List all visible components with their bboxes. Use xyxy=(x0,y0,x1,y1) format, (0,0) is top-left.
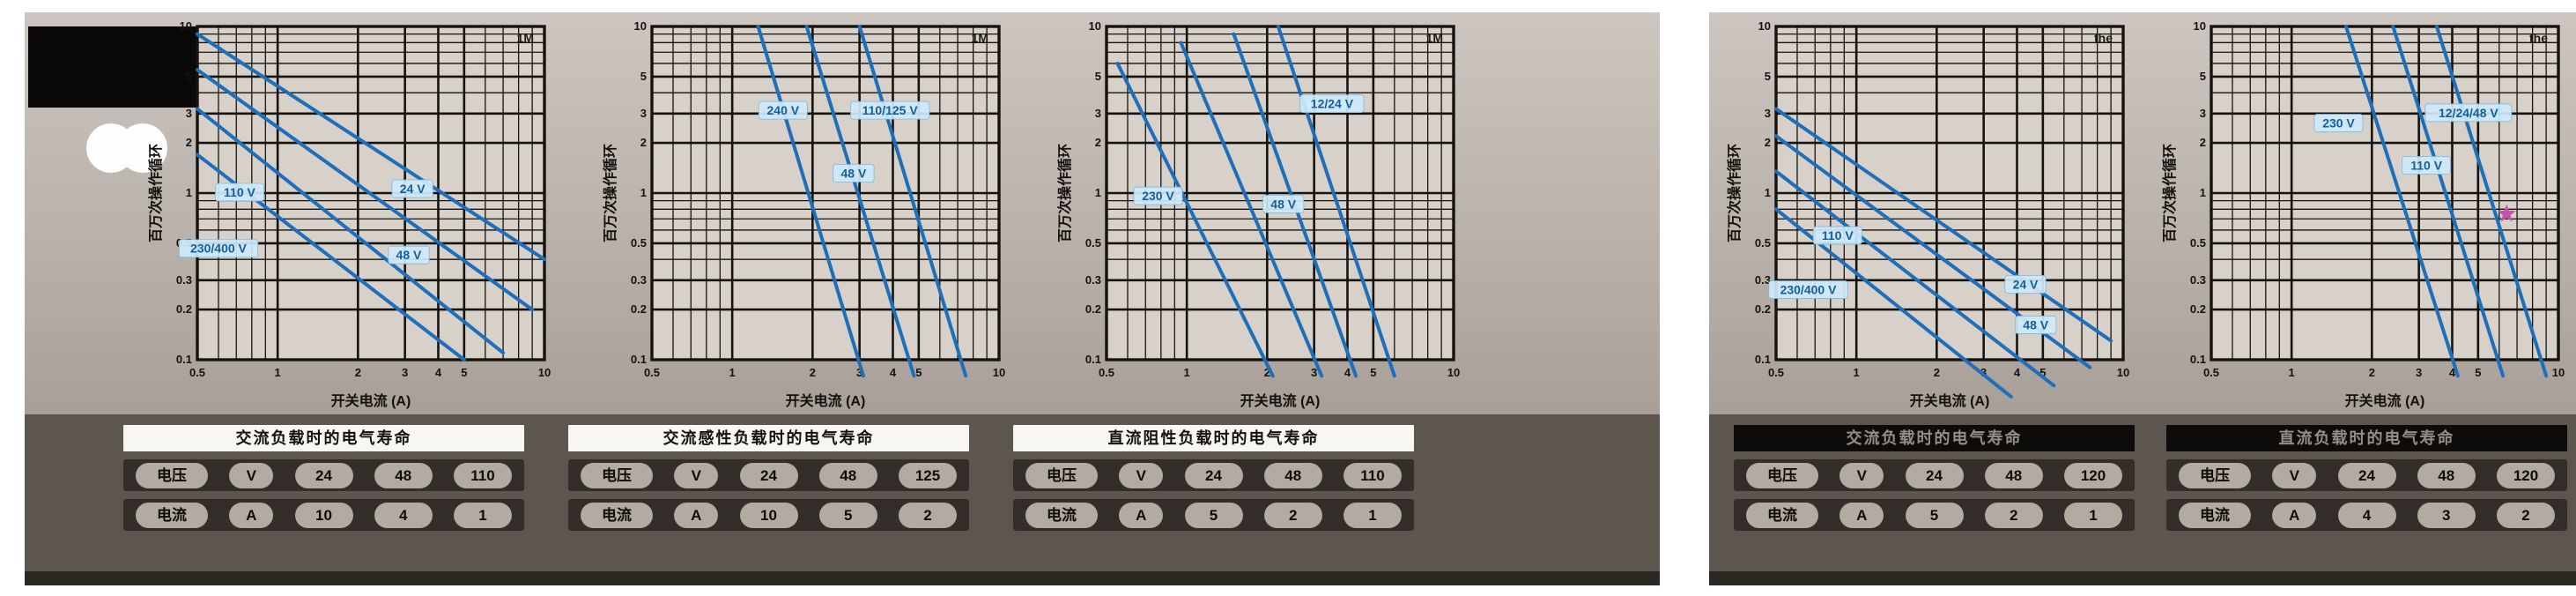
curve-label-24V: 24 V xyxy=(2005,275,2046,293)
y-tick-label: 0.5 xyxy=(1755,236,1771,250)
value-cell: 10 xyxy=(740,503,798,528)
value-cell: 48 xyxy=(1985,463,2043,488)
curve-label-122448V: 12/24/48 V xyxy=(2425,104,2512,122)
value-cell: 2 xyxy=(899,503,957,528)
curve-label-110V: 110 V xyxy=(215,183,263,201)
unit-label: A xyxy=(1839,503,1884,528)
chart-2-svg: 0.512345100.10.20.30.5123510百万次操作循环开关电流 … xyxy=(601,16,1006,414)
unit-label: A xyxy=(1119,503,1163,528)
svg-text:48 V: 48 V xyxy=(396,248,422,262)
x-tick-label: 5 xyxy=(915,366,922,379)
curve-label-230400V: 230/400 V xyxy=(1769,281,1847,299)
y-tick-label: 0.1 xyxy=(1755,353,1771,366)
value-cell: 24 xyxy=(295,463,353,488)
x-tick-label: 1 xyxy=(2289,366,2295,379)
y-tick-label: 3 xyxy=(1095,107,1101,120)
value-cell: 1 xyxy=(2064,503,2122,528)
value-cell: 120 xyxy=(2064,463,2122,488)
corner-note: the xyxy=(2529,31,2548,45)
x-axis-label: 开关电流 (A) xyxy=(331,392,411,409)
y-tick-label: 2 xyxy=(1095,136,1101,149)
value-cell: 2 xyxy=(2497,503,2555,528)
x-tick-label: 0.5 xyxy=(644,366,660,379)
unit-label: V xyxy=(229,463,273,488)
x-tick-label: 4 xyxy=(435,366,442,379)
svg-text:48 V: 48 V xyxy=(1270,197,1296,211)
corner-note: 1M xyxy=(517,31,534,45)
value-cell: 24 xyxy=(1185,463,1243,488)
y-tick-label: 10 xyxy=(180,19,192,33)
x-tick-label: 1 xyxy=(1854,366,1860,379)
y-axis-label: 百万次操作循环 xyxy=(147,144,164,242)
table-header: 交流负载时的电气寿命 xyxy=(1734,425,2135,451)
chart-1: 0.512345100.10.20.30.5123510百万次操作循环开关电流 … xyxy=(146,16,551,414)
svg-text:48 V: 48 V xyxy=(841,166,867,180)
svg-text:12/24/48 V: 12/24/48 V xyxy=(2439,106,2498,120)
value-cell: 5 xyxy=(1185,503,1243,528)
table-right-2: 直流负载时的电气寿命电压V2448120电流A432 xyxy=(2166,425,2567,531)
curve-label-110125V: 110/125 V xyxy=(850,101,929,119)
x-tick-label: 2 xyxy=(810,366,816,379)
y-tick-label: 0.2 xyxy=(176,302,192,316)
datasheet-page: 0.512345100.10.20.30.5123510百万次操作循环开关电流 … xyxy=(0,0,2576,596)
y-tick-label: 1 xyxy=(186,186,192,199)
chart-3: 0.512345100.10.20.30.5123510百万次操作循环开关电流 … xyxy=(1055,16,1461,414)
curve-label-24V: 24 V xyxy=(392,180,433,197)
y-axis-label: 百万次操作循环 xyxy=(602,144,618,242)
table-row-voltage: 电压V2448120 xyxy=(1734,459,2135,491)
x-tick-label: 0.5 xyxy=(2203,366,2219,379)
table-header: 直流负载时的电气寿命 xyxy=(2166,425,2567,451)
x-tick-label: 4 xyxy=(1344,366,1351,379)
y-tick-label: 0.2 xyxy=(2190,302,2206,316)
x-tick-label: 10 xyxy=(2552,366,2565,379)
table-row-voltage: 电压V2448110 xyxy=(1013,459,1414,491)
y-tick-label: 3 xyxy=(186,107,192,120)
value-cell: 3 xyxy=(2417,503,2476,528)
x-tick-label: 5 xyxy=(461,366,467,379)
svg-text:110 V: 110 V xyxy=(224,185,255,199)
value-cell: 48 xyxy=(2417,463,2476,488)
unit-label: V xyxy=(674,463,718,488)
table-left-1: 交流负载时的电气寿命电压V2448110电流A1041 xyxy=(123,425,524,531)
svg-text:240 V: 240 V xyxy=(767,103,800,117)
right-panel: 0.512345100.10.20.30.5123510百万次操作循环开关电流 … xyxy=(1709,12,2576,585)
value-cell: 110 xyxy=(454,463,512,488)
svg-text:12/24 V: 12/24 V xyxy=(1311,97,1354,111)
chart-3-svg: 0.512345100.10.20.30.5123510百万次操作循环开关电流 … xyxy=(1055,16,1461,414)
chart-4-svg: 0.512345100.10.20.30.5123510百万次操作循环开关电流 … xyxy=(1725,16,2130,414)
row-label: 电流 xyxy=(2179,503,2251,528)
x-tick-label: 3 xyxy=(2416,366,2422,379)
y-tick-label: 2 xyxy=(2200,136,2206,149)
y-tick-label: 0.5 xyxy=(2190,236,2206,250)
unit-label: A xyxy=(674,503,718,528)
y-axis-label: 百万次操作循环 xyxy=(1056,144,1073,242)
svg-text:24 V: 24 V xyxy=(400,182,426,196)
y-tick-label: 10 xyxy=(2194,19,2206,33)
unit-label: V xyxy=(1839,463,1884,488)
y-tick-label: 1 xyxy=(2200,186,2206,199)
value-cell: 48 xyxy=(374,463,433,488)
table-row-current: 电流A521 xyxy=(1734,499,2135,531)
y-tick-label: 10 xyxy=(634,19,647,33)
table-row-current: 电流A1052 xyxy=(568,499,969,531)
y-tick-label: 0.1 xyxy=(2190,353,2206,366)
svg-text:230 V: 230 V xyxy=(1142,189,1174,203)
value-cell: 24 xyxy=(2338,463,2396,488)
table-row-current: 电流A1041 xyxy=(123,499,524,531)
x-tick-label: 0.5 xyxy=(1099,366,1114,379)
curve-label-230V: 230 V xyxy=(2314,115,2363,132)
y-tick-label: 2 xyxy=(1765,136,1771,149)
curve-label-48V: 48 V xyxy=(833,164,874,182)
curve-label-230400V: 230/400 V xyxy=(179,240,257,257)
curve-label-48V: 48 V xyxy=(389,246,429,264)
table-row-voltage: 电压V2448110 xyxy=(123,459,524,491)
y-axis-label: 百万次操作循环 xyxy=(2161,144,2178,242)
table-right-1: 交流负载时的电气寿命电压V2448120电流A521 xyxy=(1734,425,2135,531)
svg-text:230 V: 230 V xyxy=(2322,116,2355,130)
x-tick-label: 4 xyxy=(890,366,897,379)
value-cell: 110 xyxy=(1344,463,1402,488)
value-cell: 48 xyxy=(819,463,877,488)
unit-label: V xyxy=(2272,463,2316,488)
y-tick-label: 0.1 xyxy=(176,353,192,366)
left-charts-row: 0.512345100.10.20.30.5123510百万次操作循环开关电流 … xyxy=(25,16,1660,414)
right-tables-row: 交流负载时的电气寿命电压V2448120电流A521直流负载时的电气寿命电压V2… xyxy=(1709,414,2576,585)
curve-label-110V: 110 V xyxy=(2402,157,2451,175)
value-cell: 4 xyxy=(374,503,433,528)
y-axis-label: 百万次操作循环 xyxy=(1726,144,1743,242)
curve-label-230V: 230 V xyxy=(1134,187,1182,205)
y-tick-label: 5 xyxy=(2200,70,2206,83)
x-axis-label: 开关电流 (A) xyxy=(1910,392,1990,409)
row-label: 电压 xyxy=(1025,463,1098,488)
table-header: 交流感性负载时的电气寿命 xyxy=(568,425,969,451)
svg-text:230/400 V: 230/400 V xyxy=(190,242,247,256)
x-tick-label: 0.5 xyxy=(189,366,205,379)
table-row-current: 电流A521 xyxy=(1013,499,1414,531)
table-row-voltage: 电压V2448125 xyxy=(568,459,969,491)
table-row-current: 电流A432 xyxy=(2166,499,2567,531)
y-tick-label: 5 xyxy=(1765,70,1771,83)
curve-label-48V: 48 V xyxy=(1263,195,1304,212)
y-tick-label: 0.2 xyxy=(631,302,647,316)
y-tick-label: 0.5 xyxy=(631,236,647,250)
x-tick-label: 0.5 xyxy=(1768,366,1784,379)
svg-text:24 V: 24 V xyxy=(2013,277,2039,291)
y-tick-label: 0.2 xyxy=(1085,302,1101,316)
y-tick-label: 0.3 xyxy=(1755,273,1771,287)
row-label: 电流 xyxy=(581,503,653,528)
svg-text:110 V: 110 V xyxy=(2410,159,2442,173)
chart-2: 0.512345100.10.20.30.5123510百万次操作循环开关电流 … xyxy=(601,16,1006,414)
chart-4: 0.512345100.10.20.30.5123510百万次操作循环开关电流 … xyxy=(1725,16,2130,414)
y-tick-label: 3 xyxy=(1765,107,1771,120)
y-tick-label: 1 xyxy=(1095,186,1101,199)
y-tick-label: 2 xyxy=(186,136,192,149)
value-cell: 24 xyxy=(740,463,798,488)
y-tick-label: 0.1 xyxy=(631,353,647,366)
y-tick-label: 1 xyxy=(1765,186,1771,199)
table-row-voltage: 电压V2448120 xyxy=(2166,459,2567,491)
y-tick-label: 0.3 xyxy=(2190,273,2206,287)
unit-label: A xyxy=(2272,503,2316,528)
chart-5-svg: 0.512345100.10.20.30.5123510百万次操作循环开关电流 … xyxy=(2160,16,2565,414)
value-cell: 5 xyxy=(819,503,877,528)
value-cell: 5 xyxy=(1906,503,1964,528)
chart-1-svg: 0.512345100.10.20.30.5123510百万次操作循环开关电流 … xyxy=(146,16,551,414)
value-cell: 1 xyxy=(454,503,512,528)
x-tick-label: 1 xyxy=(1184,366,1190,379)
x-tick-label: 10 xyxy=(993,366,1005,379)
value-cell: 48 xyxy=(1264,463,1322,488)
y-tick-label: 5 xyxy=(1095,70,1101,83)
table-header: 直流阻性负载时的电气寿命 xyxy=(1013,425,1414,451)
row-label: 电压 xyxy=(136,463,208,488)
y-tick-label: 0.5 xyxy=(1085,236,1101,250)
x-tick-label: 2 xyxy=(355,366,361,379)
table-header: 交流负载时的电气寿命 xyxy=(123,425,524,451)
row-label: 电压 xyxy=(2179,463,2251,488)
x-tick-label: 4 xyxy=(2014,366,2021,379)
y-tick-label: 5 xyxy=(640,70,647,83)
x-tick-label: 1 xyxy=(729,366,736,379)
row-label: 电压 xyxy=(1746,463,1818,488)
value-cell: 4 xyxy=(2338,503,2396,528)
curve-label-110V: 110 V xyxy=(1813,227,1862,244)
curve-label-240V: 240 V xyxy=(759,101,807,119)
x-tick-label: 10 xyxy=(2117,366,2129,379)
x-tick-label: 5 xyxy=(1370,366,1376,379)
svg-text:230/400 V: 230/400 V xyxy=(1780,283,1837,297)
x-tick-label: 5 xyxy=(2475,366,2481,379)
y-tick-label: 0.2 xyxy=(1755,302,1771,316)
x-tick-label: 3 xyxy=(402,366,408,379)
x-tick-label: 10 xyxy=(538,366,551,379)
corner-note: 1M xyxy=(1426,31,1443,45)
svg-text:48 V: 48 V xyxy=(2023,317,2048,332)
y-tick-label: 3 xyxy=(640,107,647,120)
left-tables-row: 交流负载时的电气寿命电压V2448110电流A1041交流感性负载时的电气寿命电… xyxy=(25,414,1660,585)
value-cell: 2 xyxy=(1264,503,1322,528)
value-cell: 120 xyxy=(2497,463,2555,488)
y-tick-label: 10 xyxy=(1089,19,1101,33)
row-label: 电流 xyxy=(136,503,208,528)
y-tick-label: 2 xyxy=(640,136,647,149)
svg-text:110/125 V: 110/125 V xyxy=(862,103,919,117)
value-cell: 2 xyxy=(1985,503,2043,528)
y-tick-label: 0.3 xyxy=(631,273,647,287)
corner-note: 1M xyxy=(972,31,988,45)
curve-label-48V: 48 V xyxy=(2015,316,2055,333)
value-cell: 1 xyxy=(1344,503,1402,528)
grid xyxy=(1776,26,2123,360)
x-tick-label: 2 xyxy=(1934,366,1940,379)
corner-note: the xyxy=(2094,31,2113,45)
table-left-2: 交流感性负载时的电气寿命电压V2448125电流A1052 xyxy=(568,425,969,531)
left-panel: 0.512345100.10.20.30.5123510百万次操作循环开关电流 … xyxy=(25,12,1660,585)
y-tick-label: 5 xyxy=(186,70,192,83)
unit-label: A xyxy=(229,503,273,528)
x-axis-label: 开关电流 (A) xyxy=(786,392,866,409)
x-tick-label: 2 xyxy=(2369,366,2375,379)
value-cell: 24 xyxy=(1906,463,1964,488)
right-charts-row: 0.512345100.10.20.30.5123510百万次操作循环开关电流 … xyxy=(1709,16,2576,414)
row-label: 电压 xyxy=(581,463,653,488)
value-cell: 125 xyxy=(899,463,957,488)
curve-label-1224V: 12/24 V xyxy=(1300,95,1364,113)
row-label: 电流 xyxy=(1025,503,1098,528)
x-tick-label: 10 xyxy=(1447,366,1460,379)
y-tick-label: 1 xyxy=(640,186,647,199)
y-tick-label: 3 xyxy=(2200,107,2206,120)
row-label: 电流 xyxy=(1746,503,1818,528)
y-tick-label: 0.1 xyxy=(1085,353,1101,366)
y-tick-label: 0.3 xyxy=(1085,273,1101,287)
svg-text:110 V: 110 V xyxy=(1822,228,1854,242)
y-tick-label: 10 xyxy=(1758,19,1771,33)
grid xyxy=(2211,26,2558,360)
table-left-3: 直流阻性负载时的电气寿命电压V2448110电流A521 xyxy=(1013,425,1414,531)
x-axis-label: 开关电流 (A) xyxy=(2345,392,2425,409)
unit-label: V xyxy=(1119,463,1163,488)
chart-5: 0.512345100.10.20.30.5123510百万次操作循环开关电流 … xyxy=(2160,16,2565,414)
y-tick-label: 0.3 xyxy=(176,273,192,287)
x-tick-label: 1 xyxy=(275,366,281,379)
value-cell: 10 xyxy=(295,503,353,528)
x-axis-label: 开关电流 (A) xyxy=(1240,392,1321,409)
